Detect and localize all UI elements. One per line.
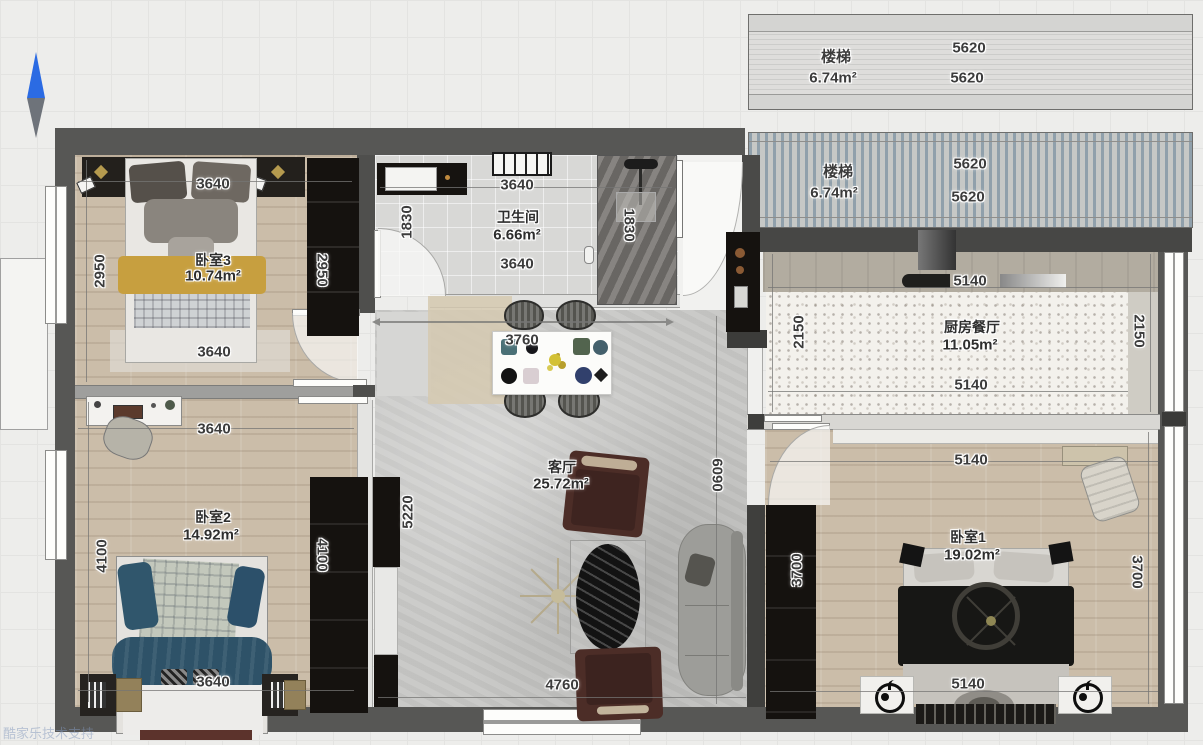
- pillow: [993, 551, 1055, 583]
- door-lock-panel: [734, 286, 748, 308]
- bedroom1-nightstand[interactable]: [1058, 676, 1112, 714]
- stairs-upper-label[interactable]: 楼梯: [821, 50, 851, 65]
- room-area-label[interactable]: 25.72m²: [533, 477, 589, 492]
- watermark: 酷家乐技术支持: [3, 723, 94, 742]
- ring-center: [986, 616, 996, 626]
- stairs-upper-bottom-strip: [749, 94, 1192, 109]
- living-kitchen-wall[interactable]: [747, 348, 763, 416]
- kitchen-floor[interactable]: [766, 292, 1128, 415]
- range-hood[interactable]: [902, 274, 950, 288]
- room-label[interactable]: 卧室2: [195, 510, 231, 524]
- plant-icon: [165, 400, 175, 410]
- lamp-icon: [875, 683, 905, 713]
- hallway-floor: [377, 312, 431, 396]
- dining-chair[interactable]: [504, 300, 544, 330]
- plate: [593, 340, 608, 355]
- plate: [523, 368, 539, 384]
- mouse: [151, 403, 156, 408]
- stairs-lower-line-top: [749, 141, 1192, 142]
- bathroom-vanity[interactable]: [377, 163, 467, 195]
- living-kitchen-wall-block[interactable]: [727, 330, 767, 348]
- desk-lamp-icon: [94, 401, 101, 408]
- entry-door-panel[interactable]: [726, 232, 760, 332]
- sofa[interactable]: [678, 524, 746, 696]
- dim-label[interactable]: 2150: [792, 315, 807, 348]
- sofa-seam: [685, 605, 729, 606]
- dim-label[interactable]: 5140: [951, 677, 984, 692]
- room-label[interactable]: 卧室3: [195, 253, 231, 267]
- bedroom3-nightstand[interactable]: [255, 157, 305, 197]
- kitchen-sliding-door-panel[interactable]: [764, 415, 822, 422]
- lamp-diamond-icon: [271, 165, 285, 179]
- flower-decor: [549, 354, 561, 366]
- range-hood-duct[interactable]: [918, 230, 956, 270]
- dim-label[interactable]: 4100: [95, 539, 110, 572]
- black-throw-corner: [1048, 541, 1073, 565]
- dim-arrow-icon: [372, 318, 380, 326]
- cooktop[interactable]: [1000, 274, 1066, 288]
- towel-radiator[interactable]: [492, 152, 552, 176]
- floorplan-canvas: 楼梯 6.74m² 5620 5620 楼梯 6.74m² 5620 5620: [0, 0, 1203, 745]
- pillow: [128, 161, 187, 204]
- bed-bench[interactable]: [140, 730, 252, 740]
- plate: [575, 367, 592, 384]
- shower-door-handle: [584, 246, 594, 264]
- door-knob-icon: [736, 266, 744, 274]
- dining-chair[interactable]: [556, 300, 596, 330]
- dim-line: [1148, 432, 1149, 704]
- bedroom1-top-ledge: [833, 429, 1158, 444]
- living-side-cabinet[interactable]: [373, 477, 400, 567]
- stairs-room-upper[interactable]: [748, 14, 1193, 110]
- bedroom3-wardrobe[interactable]: [307, 158, 359, 336]
- stairs-lower-dim-a[interactable]: 5620: [953, 157, 986, 172]
- left-annex: [0, 258, 48, 430]
- room-area-label[interactable]: 11.05m²: [942, 338, 997, 353]
- bedside-box[interactable]: [116, 678, 142, 712]
- north-indicator-icon: [27, 52, 45, 140]
- bedside-box[interactable]: [284, 680, 306, 710]
- bedroom2-wardrobe[interactable]: [310, 477, 368, 713]
- living-bedroom1-wall[interactable]: [747, 505, 765, 707]
- door-knob-icon: [735, 248, 745, 258]
- plate: [594, 368, 608, 382]
- faucet-icon: [445, 175, 450, 180]
- right-wall-pier: [1162, 412, 1186, 426]
- dim-label[interactable]: 6090: [710, 458, 725, 491]
- kitchen-right-counter[interactable]: [1128, 292, 1158, 415]
- bedroom1-nightstand[interactable]: [860, 676, 914, 714]
- bedroom3-nightstand[interactable]: [82, 157, 130, 197]
- north-arrow-down: [27, 98, 45, 138]
- bedroom2-sliding-door-panel[interactable]: [298, 396, 368, 404]
- coffee-table[interactable]: [576, 544, 640, 650]
- dim-arrow-icon: [666, 318, 674, 326]
- top-wall[interactable]: [55, 128, 745, 155]
- dim-label[interactable]: 1830: [400, 205, 415, 238]
- duvet-ring-decor: [952, 582, 1020, 650]
- checker-pillow: [161, 669, 187, 685]
- entry-right-wall[interactable]: [742, 155, 760, 232]
- dim-line: [1150, 254, 1151, 412]
- shower-head-icon: [624, 159, 658, 169]
- dim-label[interactable]: 3640: [197, 345, 230, 360]
- dim-line: [88, 402, 89, 702]
- living-side-shelf[interactable]: [374, 567, 398, 655]
- dim-label[interactable]: 5220: [401, 495, 416, 528]
- bedroom3-bed[interactable]: [125, 158, 257, 363]
- sofa-pillow: [684, 552, 717, 588]
- armchair[interactable]: [575, 647, 663, 722]
- stairs-room-lower[interactable]: [748, 132, 1193, 228]
- bedroom3-window[interactable]: [45, 186, 67, 324]
- bedroom2-sliding-door-cap: [353, 385, 375, 397]
- kitchen-window[interactable]: [1164, 252, 1184, 412]
- plate: [573, 338, 590, 355]
- sofa-back: [731, 531, 743, 691]
- stairs-upper-dim-b[interactable]: 5620: [950, 71, 983, 86]
- dim-label[interactable]: 3640: [197, 422, 230, 437]
- stairs-lower-line-bottom: [749, 217, 1192, 218]
- room-area-label[interactable]: 14.92m²: [183, 528, 239, 543]
- room-label[interactable]: 卫生间: [497, 210, 539, 224]
- bed-footboard[interactable]: [916, 704, 1056, 724]
- dim-line: [716, 316, 717, 704]
- room-area-label[interactable]: 19.02m²: [944, 548, 1000, 563]
- dim-line: [772, 254, 773, 412]
- dim-label[interactable]: 3640: [196, 675, 229, 690]
- kitchen-sliding-door-cap: [748, 414, 764, 429]
- dim-label[interactable]: 3700: [1130, 555, 1145, 588]
- dim-label[interactable]: 3700: [790, 553, 805, 586]
- room-area-label[interactable]: 6.66m²: [493, 228, 541, 243]
- armchair-handle: [581, 455, 638, 471]
- dim-label[interactable]: 3640: [500, 257, 533, 272]
- armchair-handle: [597, 705, 649, 715]
- room-area-label[interactable]: 10.74m²: [185, 269, 241, 284]
- bedroom2-window[interactable]: [45, 450, 67, 560]
- lamp-diamond-icon: [94, 165, 108, 179]
- dim-label[interactable]: 4100: [315, 538, 330, 571]
- room-label[interactable]: 客厅: [548, 460, 576, 474]
- dim-label[interactable]: 2950: [93, 254, 108, 287]
- bed-foot-sheet: [123, 685, 263, 735]
- stairs-upper-area[interactable]: 6.74m²: [809, 71, 857, 86]
- bedroom1-black-duvet[interactable]: [898, 586, 1074, 666]
- dim-label[interactable]: 2150: [1132, 314, 1147, 347]
- stairs-lower-label[interactable]: 楼梯: [823, 165, 853, 180]
- dim-label[interactable]: 3640: [500, 178, 533, 193]
- dim-label[interactable]: 5140: [954, 453, 987, 468]
- room-label[interactable]: 卧室1: [950, 530, 986, 544]
- dim-line: [378, 697, 746, 698]
- kitchen-top-wall[interactable]: [745, 228, 1192, 252]
- dim-label[interactable]: 3640: [196, 177, 229, 192]
- black-throw-corner: [899, 543, 925, 567]
- dim-label[interactable]: 4760: [545, 678, 578, 693]
- north-arrow-up: [27, 52, 45, 98]
- living-side-cabinet[interactable]: [374, 655, 398, 707]
- stairs-upper-top-strip: [749, 15, 1192, 32]
- bedroom2-nightstand[interactable]: [80, 674, 116, 716]
- dim-label[interactable]: 5140: [954, 378, 987, 393]
- dim-line: [768, 391, 1128, 392]
- stairs-lower-dim-b[interactable]: 5620: [951, 190, 984, 205]
- bedroom3-hall-wall[interactable]: [357, 155, 375, 313]
- dim-line-3760: [378, 321, 668, 323]
- stairs-lower-area[interactable]: 6.74m²: [810, 186, 858, 201]
- dim-label[interactable]: 3760: [505, 333, 538, 348]
- stairs-upper-dim-a[interactable]: 5620: [952, 41, 985, 56]
- nightstand-decor: [88, 682, 106, 708]
- plaid-blanket: [134, 294, 250, 328]
- starburst-center: [551, 589, 565, 603]
- bedroom1-wardrobe[interactable]: [766, 505, 816, 719]
- dim-label[interactable]: 5140: [953, 274, 986, 289]
- room-label[interactable]: 厨房餐厅: [944, 320, 1000, 334]
- plate: [501, 368, 517, 384]
- sofa-seam: [685, 655, 729, 656]
- dim-line: [86, 160, 87, 382]
- dim-label[interactable]: 1830: [622, 208, 637, 241]
- dim-label[interactable]: 2950: [315, 253, 330, 286]
- bedroom1-window[interactable]: [1164, 426, 1184, 704]
- lamp-icon: [1073, 683, 1103, 713]
